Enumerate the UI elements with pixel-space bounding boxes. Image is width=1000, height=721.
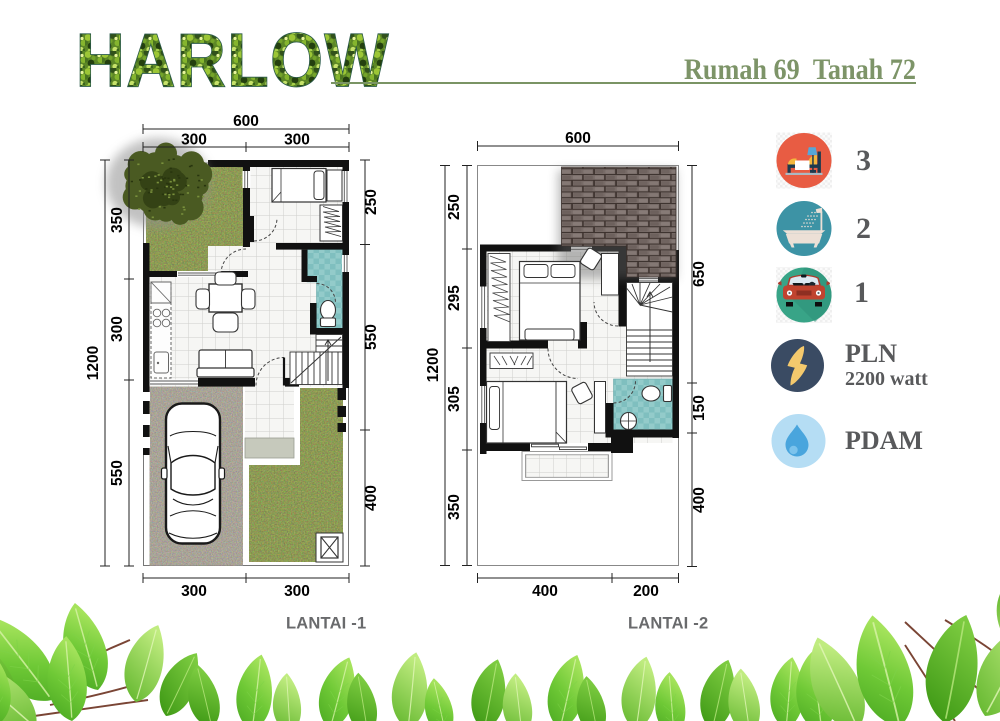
svg-text:150: 150 xyxy=(691,395,708,421)
svg-text:LANTAI -1: LANTAI -1 xyxy=(286,615,366,633)
svg-text:305: 305 xyxy=(446,386,463,412)
svg-text:650: 650 xyxy=(691,261,708,287)
svg-text:1200: 1200 xyxy=(425,348,442,382)
svg-text:1200: 1200 xyxy=(85,346,102,380)
svg-text:300: 300 xyxy=(284,583,310,600)
svg-text:300: 300 xyxy=(181,132,207,149)
svg-text:400: 400 xyxy=(532,583,558,600)
svg-text:PDAM: PDAM xyxy=(845,426,923,455)
svg-text:PLN: PLN xyxy=(845,339,897,368)
svg-text:600: 600 xyxy=(565,130,591,147)
svg-text:200: 200 xyxy=(633,583,659,600)
svg-text:300: 300 xyxy=(109,316,126,342)
svg-text:2200 watt: 2200 watt xyxy=(845,368,928,390)
svg-text:300: 300 xyxy=(181,583,207,600)
svg-text:LANTAI -2: LANTAI -2 xyxy=(628,615,708,633)
svg-text:HARLOW: HARLOW xyxy=(76,18,390,102)
svg-text:400: 400 xyxy=(691,487,708,513)
svg-text:600: 600 xyxy=(233,113,259,130)
svg-text:3: 3 xyxy=(856,144,871,177)
svg-text:300: 300 xyxy=(284,132,310,149)
svg-text:350: 350 xyxy=(109,207,126,233)
svg-text:1: 1 xyxy=(854,276,869,309)
svg-text:400: 400 xyxy=(363,485,380,511)
svg-text:350: 350 xyxy=(446,494,463,520)
svg-text:550: 550 xyxy=(109,460,126,486)
svg-text:250: 250 xyxy=(363,189,380,215)
svg-text:250: 250 xyxy=(446,194,463,220)
svg-text:Rumah 69 Tanah 72: Rumah 69 Tanah 72 xyxy=(684,53,916,86)
svg-text:2: 2 xyxy=(856,212,871,245)
svg-text:295: 295 xyxy=(446,285,463,311)
svg-text:550: 550 xyxy=(363,324,380,350)
